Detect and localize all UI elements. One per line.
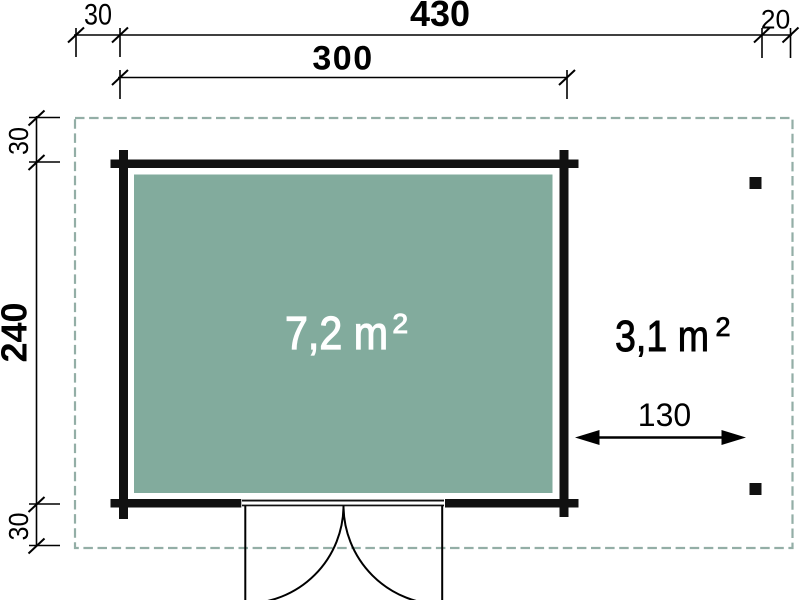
svg-text:7,2 m: 7,2 m (285, 307, 388, 359)
svg-text:2: 2 (393, 308, 409, 339)
svg-text:3,1 m: 3,1 m (615, 312, 709, 361)
svg-text:300: 300 (312, 40, 373, 78)
svg-text:20: 20 (761, 5, 790, 35)
svg-text:130: 130 (638, 397, 691, 433)
svg-text:430: 430 (410, 0, 470, 34)
svg-text:30: 30 (3, 513, 34, 541)
svg-text:2: 2 (716, 312, 731, 342)
svg-text:30: 30 (3, 127, 34, 155)
svg-text:240: 240 (0, 302, 35, 362)
svg-text:30: 30 (84, 0, 112, 32)
